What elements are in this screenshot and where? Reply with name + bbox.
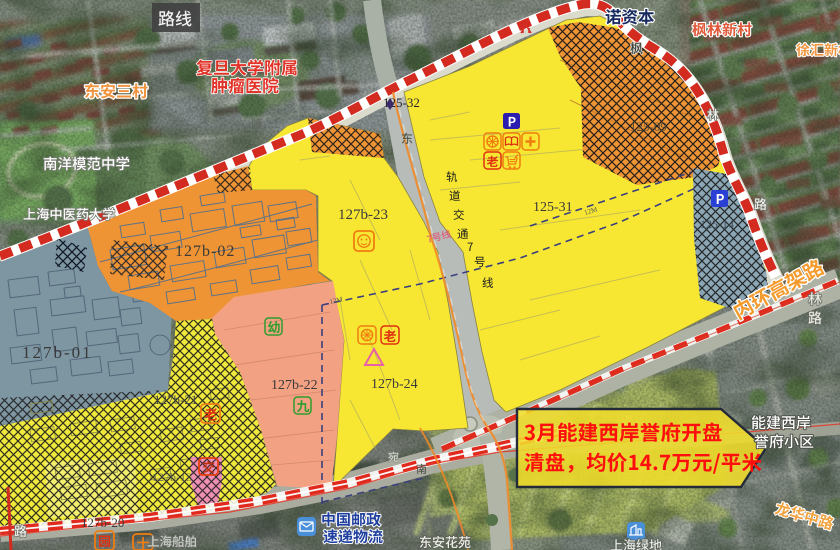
svg-text:127b-02: 127b-02	[175, 243, 235, 260]
svg-text:127b-24: 127b-24	[371, 377, 418, 392]
svg-text:127b-22: 127b-22	[271, 378, 318, 393]
svg-text:125-09: 125-09	[630, 119, 667, 134]
svg-text:127b-21: 127b-21	[154, 392, 197, 407]
svg-text:127b-01: 127b-01	[22, 343, 93, 362]
svg-text:127b-23: 127b-23	[338, 207, 388, 223]
svg-text:125-31: 125-31	[533, 200, 573, 215]
svg-text:125-14: 125-14	[700, 217, 734, 231]
svg-text:127b-20: 127b-20	[81, 515, 124, 530]
svg-text:127b-13: 127b-13	[152, 470, 192, 484]
